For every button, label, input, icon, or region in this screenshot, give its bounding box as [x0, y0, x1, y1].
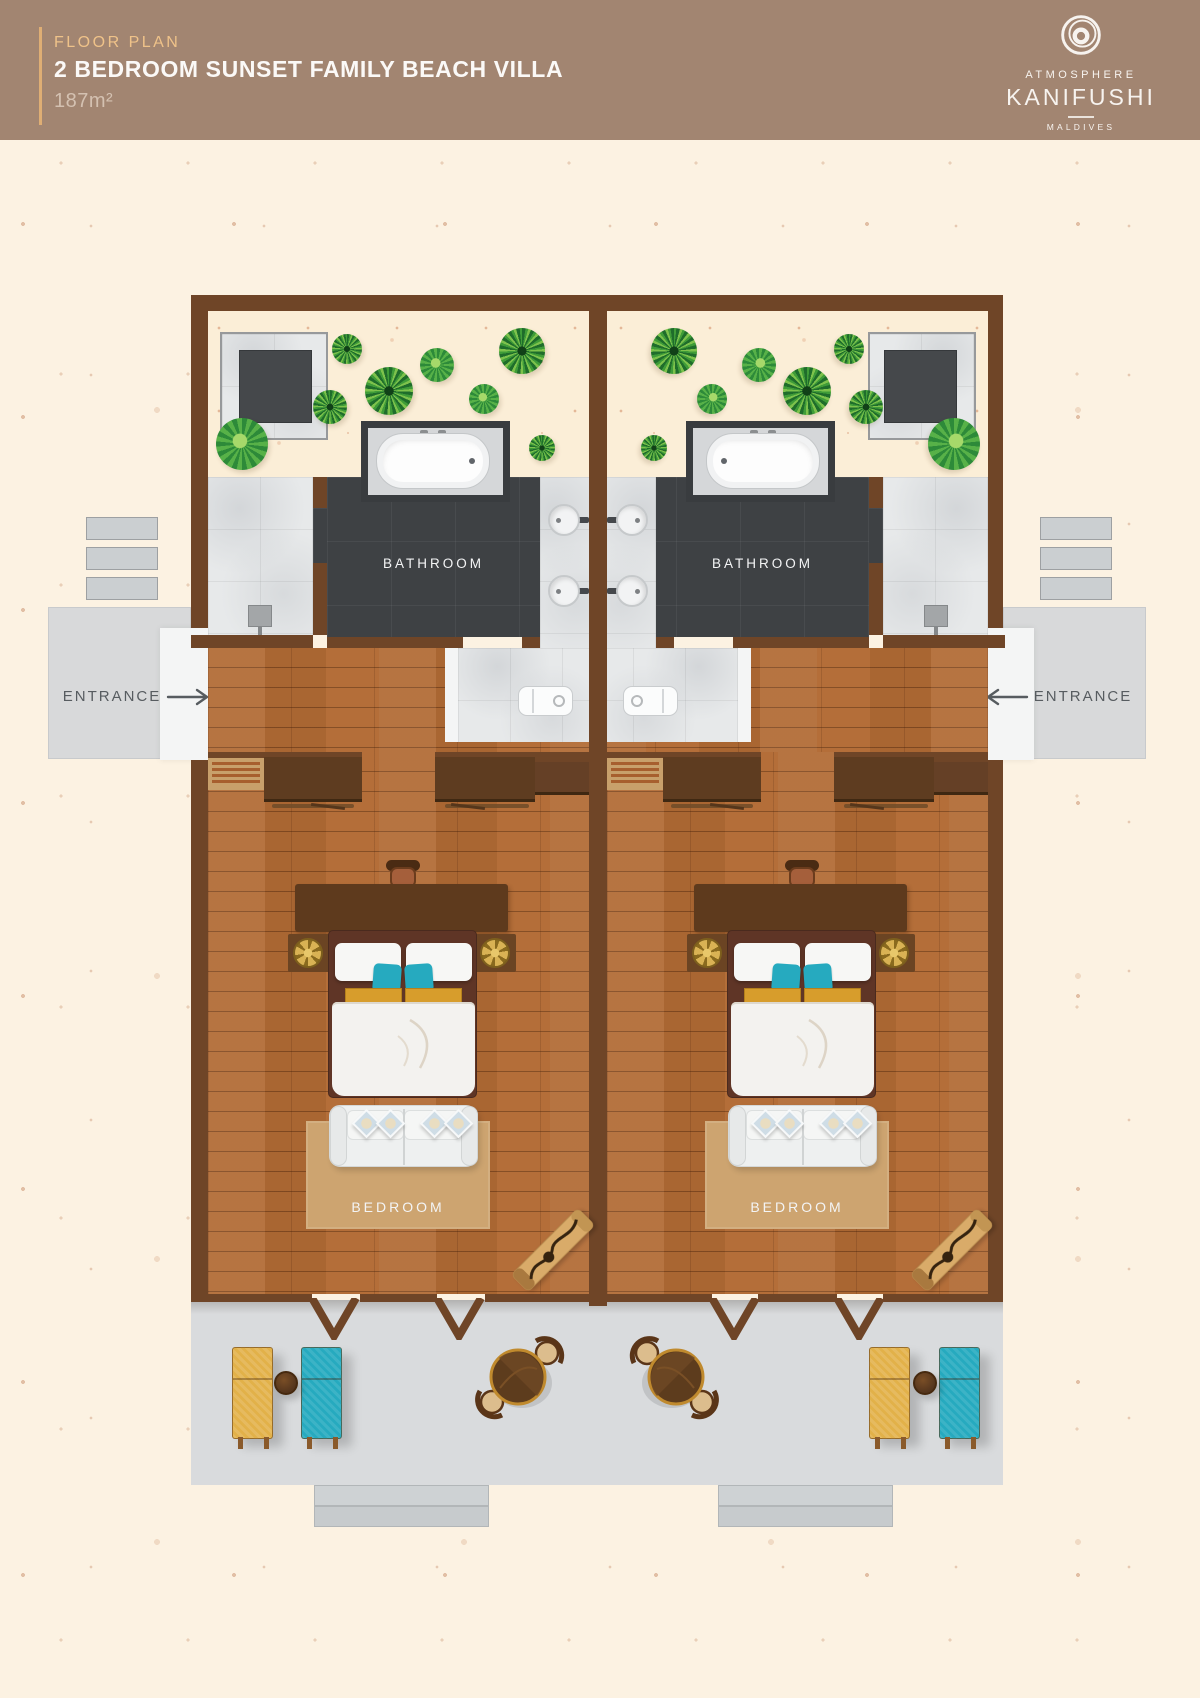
bathtub [706, 433, 820, 489]
bathtub-platform [686, 421, 835, 502]
header-bar: FLOOR PLAN 2 BEDROOM SUNSET FAMILY BEACH… [0, 0, 1200, 140]
desk-console [435, 757, 535, 802]
entrance-arrow-left-icon [983, 688, 1029, 706]
lamp-icon [692, 938, 722, 968]
entrance-step-bar [1040, 547, 1112, 570]
entrance-label-right: ENTRANCE [1023, 688, 1143, 705]
sun-lounger-teal [301, 1347, 342, 1439]
plant-icon [313, 390, 347, 424]
vanity-counter [607, 477, 656, 648]
sink-basin [616, 504, 648, 536]
plant-icon [849, 390, 883, 424]
tub-drain [721, 458, 727, 464]
entrance-step-bar [86, 547, 158, 570]
bathtub [376, 433, 490, 489]
entrance-label-left: ENTRANCE [52, 688, 172, 705]
plant-icon [529, 435, 555, 461]
door-swing-icon [308, 1298, 360, 1340]
shower-stool [248, 605, 272, 627]
wall-bathroom-bottom [327, 637, 463, 648]
logo-brand-sub: MALDIVES [961, 122, 1200, 132]
deck-steps-left [314, 1485, 489, 1528]
bathroom-label: BATHROOM [327, 556, 540, 571]
wall-shower-room [883, 635, 1005, 648]
door-swing-icon [833, 1298, 885, 1340]
bed-runner [744, 988, 801, 1003]
shower-tray [239, 350, 312, 423]
sun-lounger-yellow [869, 1347, 910, 1439]
sun-lounger-yellow [232, 1347, 273, 1439]
toilet-room-door [445, 648, 458, 742]
sun-lounger-teal [939, 1347, 980, 1439]
double-bed [727, 930, 876, 1098]
toilet [623, 686, 678, 716]
bedroom-label: BEDROOM [705, 1199, 889, 1215]
wall-center [589, 295, 607, 1306]
bed-duvet [731, 1002, 874, 1096]
plant-icon [834, 334, 864, 364]
bathroom-label: BATHROOM [656, 556, 869, 571]
sink-basin [548, 575, 580, 607]
wall-bathroom-bottom [733, 637, 869, 648]
plant-icon [783, 367, 831, 415]
resort-logo: ATMOSPHERE KANIFUSHI MALDIVES [961, 8, 1200, 132]
vanity-counter [540, 477, 589, 648]
plant-icon [697, 384, 727, 414]
bath-wing: BATHROOM [607, 311, 988, 752]
plant-icon [742, 348, 776, 382]
wall-shower-divider [313, 563, 327, 635]
plant-icon [651, 328, 697, 374]
desk-console [834, 757, 934, 802]
entrance-arrow-right-icon [166, 688, 212, 706]
wall-left-lower [191, 760, 208, 1294]
plant-icon [469, 384, 499, 414]
desk-console [663, 757, 761, 802]
wall-right-lower [986, 760, 1003, 1294]
bath-wing: BATHROOM [208, 311, 589, 752]
bedroom-wing: BEDROOM [607, 752, 988, 1294]
wall-shower-divider [869, 477, 883, 508]
plant-icon [216, 418, 268, 470]
plant-icon [928, 418, 980, 470]
villa-unit-left: BATHROOM [208, 311, 589, 1294]
bed-duvet [332, 1002, 475, 1096]
duvet-fold-lines [731, 1002, 874, 1096]
shower-stool [924, 605, 948, 627]
lamp-icon [879, 938, 909, 968]
toilet [518, 686, 573, 716]
desk-console [264, 757, 362, 802]
entrance-step-bar [86, 517, 158, 540]
logo-brand-top: ATMOSPHERE [961, 69, 1200, 81]
side-table [274, 1371, 298, 1395]
headboard-console [694, 884, 907, 932]
headboard-console [295, 884, 508, 932]
bed-runner [804, 988, 861, 1003]
plant-icon [332, 334, 362, 364]
deck-steps-right [718, 1485, 893, 1528]
bathtub-platform [361, 421, 510, 502]
villa-title: 2 BEDROOM SUNSET FAMILY BEACH VILLA [54, 56, 563, 83]
bedroom-label: BEDROOM [306, 1199, 490, 1215]
plant-icon [499, 328, 545, 374]
entrance-step-bar [1040, 577, 1112, 600]
dining-set [624, 1327, 724, 1427]
bed-runner [345, 988, 402, 1003]
sofa [329, 1105, 477, 1167]
wall-shower-room [191, 635, 313, 648]
wall-right-upper [986, 312, 1003, 628]
wall-shower-divider [313, 477, 327, 508]
floor-plan-page: FLOOR PLAN 2 BEDROOM SUNSET FAMILY BEACH… [0, 0, 1200, 1698]
villa-area: 187m² [54, 90, 113, 113]
wardrobe [934, 762, 988, 795]
sink-basin [616, 575, 648, 607]
logo-divider [1068, 116, 1094, 118]
bed-runner [405, 988, 462, 1003]
floorplan-eyebrow: FLOOR PLAN [54, 34, 180, 52]
wall-left-upper [191, 312, 208, 628]
plant-icon [641, 435, 667, 461]
entrance-step-bar [86, 577, 158, 600]
entrance-step-bar [1040, 517, 1112, 540]
logo-rings-icon [1054, 8, 1108, 62]
logo-brand-main: KANIFUSHI [961, 84, 1200, 111]
wardrobe [535, 762, 589, 795]
sofa [728, 1105, 876, 1167]
toilet-room-door [738, 648, 751, 742]
shower-door-gap [313, 508, 327, 563]
shower-door-gap [869, 508, 883, 563]
shower-tray [884, 350, 957, 423]
villa-unit-right: BATHROOM [607, 311, 988, 1294]
plant-icon [365, 367, 413, 415]
side-table [913, 1371, 937, 1395]
luggage-rack [208, 758, 264, 790]
lamp-icon [293, 938, 323, 968]
lamp-icon [480, 938, 510, 968]
accent-line [39, 27, 42, 125]
wall-shower-divider [869, 563, 883, 635]
dining-set [470, 1327, 570, 1427]
plant-icon [420, 348, 454, 382]
sink-basin [548, 504, 580, 536]
bedroom-wing: BEDROOM [208, 752, 589, 1294]
duvet-fold-lines [332, 1002, 475, 1096]
double-bed [328, 930, 477, 1098]
tub-drain [469, 458, 475, 464]
luggage-rack [607, 758, 663, 790]
